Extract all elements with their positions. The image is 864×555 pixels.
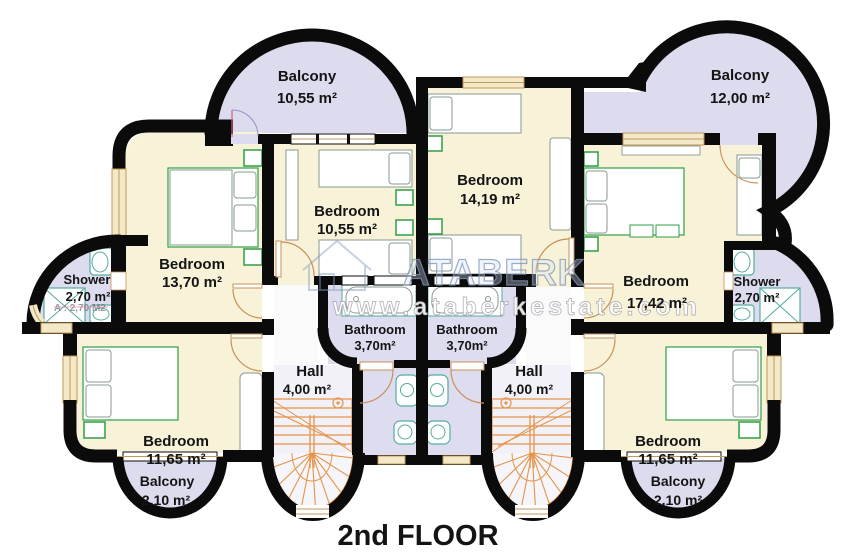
svg-text:Bedroom: Bedroom [623, 273, 689, 290]
svg-text:10,55 m²: 10,55 m² [317, 221, 377, 238]
svg-text:Bathroom: Bathroom [436, 322, 497, 337]
svg-text:11,65 m²: 11,65 m² [146, 451, 205, 468]
svg-text:Bedroom: Bedroom [143, 433, 209, 450]
svg-text:ATABERK: ATABERK [403, 252, 585, 293]
svg-text:Bedroom: Bedroom [159, 256, 225, 273]
svg-text:A : 2,70 M2: A : 2,70 M2 [54, 303, 106, 314]
svg-text:13,70 m²: 13,70 m² [162, 274, 222, 291]
svg-text:2,70 m²: 2,70 m² [66, 289, 111, 304]
svg-text:2,10 m²: 2,10 m² [654, 492, 703, 508]
svg-text:10,55 m²: 10,55 m² [277, 90, 337, 107]
svg-text:Balcony: Balcony [278, 68, 337, 85]
svg-text:2nd FLOOR: 2nd FLOOR [337, 520, 498, 552]
svg-text:17,42 m²: 17,42 m² [627, 295, 687, 312]
svg-text:2,70 m²: 2,70 m² [735, 290, 780, 305]
svg-text:Shower: Shower [734, 274, 781, 289]
svg-text:3,70m²: 3,70m² [354, 338, 396, 353]
svg-text:Balcony: Balcony [140, 473, 195, 489]
svg-text:Bedroom: Bedroom [457, 172, 523, 189]
svg-text:Bedroom: Bedroom [314, 203, 380, 220]
svg-text:12,00 m²: 12,00 m² [710, 90, 770, 107]
svg-text:Shower: Shower [64, 272, 111, 287]
svg-text:14,19 m²: 14,19 m² [460, 191, 520, 208]
svg-text:Hall: Hall [296, 363, 324, 380]
svg-text:Balcony: Balcony [711, 67, 770, 84]
svg-text:Bathroom: Bathroom [344, 322, 405, 337]
svg-text:2,10 m²: 2,10 m² [142, 492, 191, 508]
svg-text:Balcony: Balcony [651, 473, 706, 489]
svg-text:Bedroom: Bedroom [635, 433, 701, 450]
svg-text:11,65 m²: 11,65 m² [638, 451, 697, 468]
svg-text:4,00 m²: 4,00 m² [283, 381, 332, 397]
svg-text:4,00 m²: 4,00 m² [505, 381, 554, 397]
svg-text:3,70m²: 3,70m² [446, 338, 488, 353]
svg-text:Hall: Hall [515, 363, 543, 380]
